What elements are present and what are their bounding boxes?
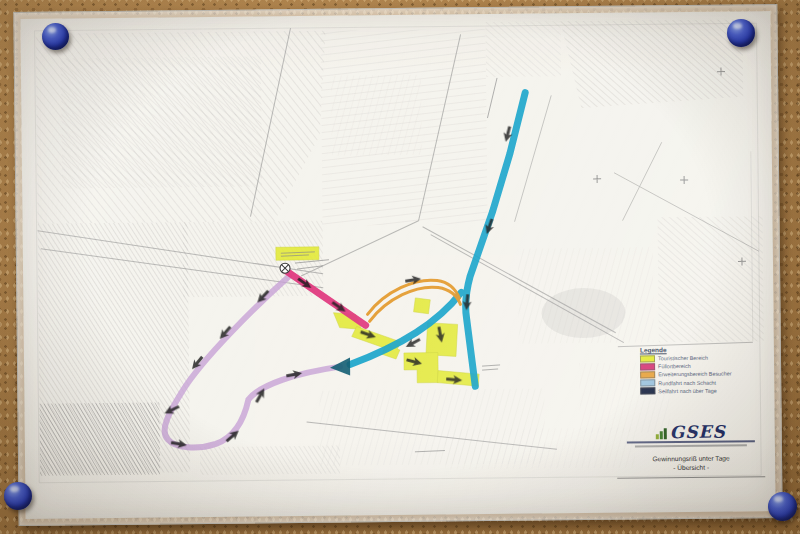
legend-title: Legende [640,345,766,353]
company-fine-print [635,444,747,447]
plastic-sleeve: Legende Touristischer Bereich Füllortber… [13,4,782,526]
legend-swatch-orange [640,372,655,379]
legend-label: Touristischer Bereich [658,355,708,362]
legend-swatch-dark [640,388,655,395]
route-pink [285,269,366,326]
legend-swatch-yellow [640,355,655,362]
photo-of-corkboard: { "board": { "pin_color": "#2c3fbd", "pi… [0,0,800,534]
push-pin-bottom-right [768,492,797,521]
base-map-hatching [35,19,765,477]
legend-label: Erweiterungsbereich Besucher [658,371,731,378]
route-orange [367,280,460,321]
push-pin-top-right [727,19,755,47]
map-subtitle: - Übersicht - [617,463,765,472]
map-title: Gewinnungsriß unter Tage [617,454,765,463]
legend-item: Füllortbereich [640,362,766,370]
shaft-symbol [280,263,290,273]
legend-label: Seilfahrt nach über Tage [658,387,716,394]
gses-logo-text: GSES [670,424,726,441]
legend-item: Touristischer Bereich [640,354,766,362]
push-pin-bottom-left [4,482,32,510]
gses-logo-icon [656,427,667,440]
legend-label: Rundfahrt nach Schacht [658,379,716,386]
push-pin-top-left [42,23,69,50]
gses-logo: GSES [617,423,765,441]
title-block: GSES Gewinnungsriß unter Tage - Übersich… [617,423,766,479]
route-purple-loop [163,276,341,448]
legend-item: Seilfahrt nach über Tage [640,387,766,395]
route-cyan-flared-end [330,358,350,376]
map-legend: Legende Touristischer Bereich Füllortber… [640,345,767,396]
legend-label: Füllortbereich [658,363,691,369]
map-paper: Legende Touristischer Bereich Füllortber… [20,11,775,519]
legend-item: Rundfahrt nach Schacht [640,378,766,386]
legend-swatch-lightblue [640,380,655,387]
logo-underline [627,440,755,443]
legend-swatch-pink [640,363,655,370]
legend-item: Erweiterungsbereich Besucher [640,370,766,378]
